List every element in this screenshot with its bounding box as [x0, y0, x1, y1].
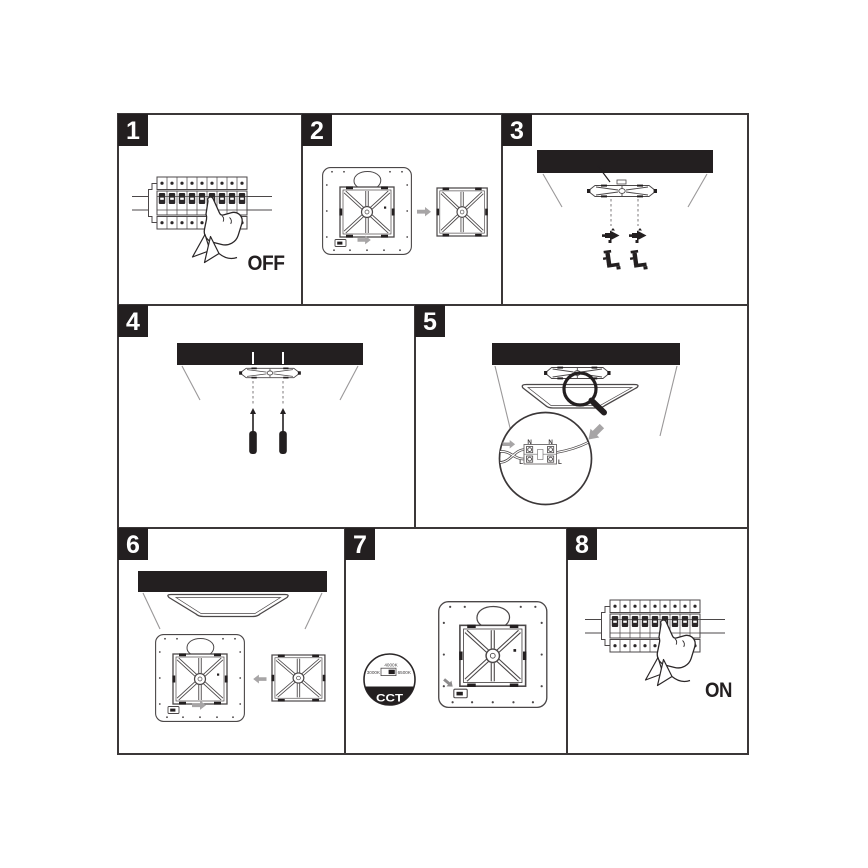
cell-step-3 — [502, 114, 748, 305]
mounting-bracket-icon — [239, 368, 301, 379]
bracket-center-tab — [617, 180, 626, 184]
power-on-label: ON — [705, 679, 732, 702]
terminal-label-l-right: L — [558, 459, 562, 466]
panel-back-icon — [439, 602, 547, 708]
step-number: 8 — [575, 531, 589, 559]
ceiling — [177, 343, 363, 365]
mounting-bracket-icon — [271, 654, 325, 701]
wiring-detail: N N L L — [500, 413, 592, 505]
cct-label: CCT — [376, 693, 403, 705]
step-number: 7 — [353, 531, 367, 559]
power-off-label: OFF — [248, 252, 286, 275]
mounting-bracket-icon — [436, 187, 487, 236]
terminal-label-n-left: N — [527, 439, 532, 446]
step-number: 3 — [510, 117, 524, 145]
terminal-block — [524, 445, 557, 465]
ceiling — [537, 150, 713, 173]
step-number: 6 — [126, 531, 140, 559]
step-number: 5 — [423, 308, 437, 336]
cell-step-4 — [118, 305, 415, 528]
cct-selector: CCT 4000K 3000K 6500K — [364, 654, 415, 705]
cct-switch-knob — [389, 670, 395, 674]
cct-top-label: 4000K — [384, 662, 398, 667]
step-number: 4 — [126, 308, 140, 336]
step-number: 2 — [310, 117, 324, 145]
installation-instruction-sheet: 1 OFF 2 3 4 — [0, 0, 868, 868]
cell-step-5 — [415, 305, 748, 528]
cct-right-label: 6500K — [398, 670, 412, 675]
terminal-label-n-right: N — [548, 439, 553, 446]
terminal-label-l-left: L — [519, 459, 523, 466]
step-number: 1 — [126, 117, 140, 145]
ceiling — [138, 571, 327, 592]
ceiling — [492, 343, 680, 365]
cct-left-label: 3000K — [367, 670, 381, 675]
mounting-bracket-icon — [587, 185, 657, 198]
